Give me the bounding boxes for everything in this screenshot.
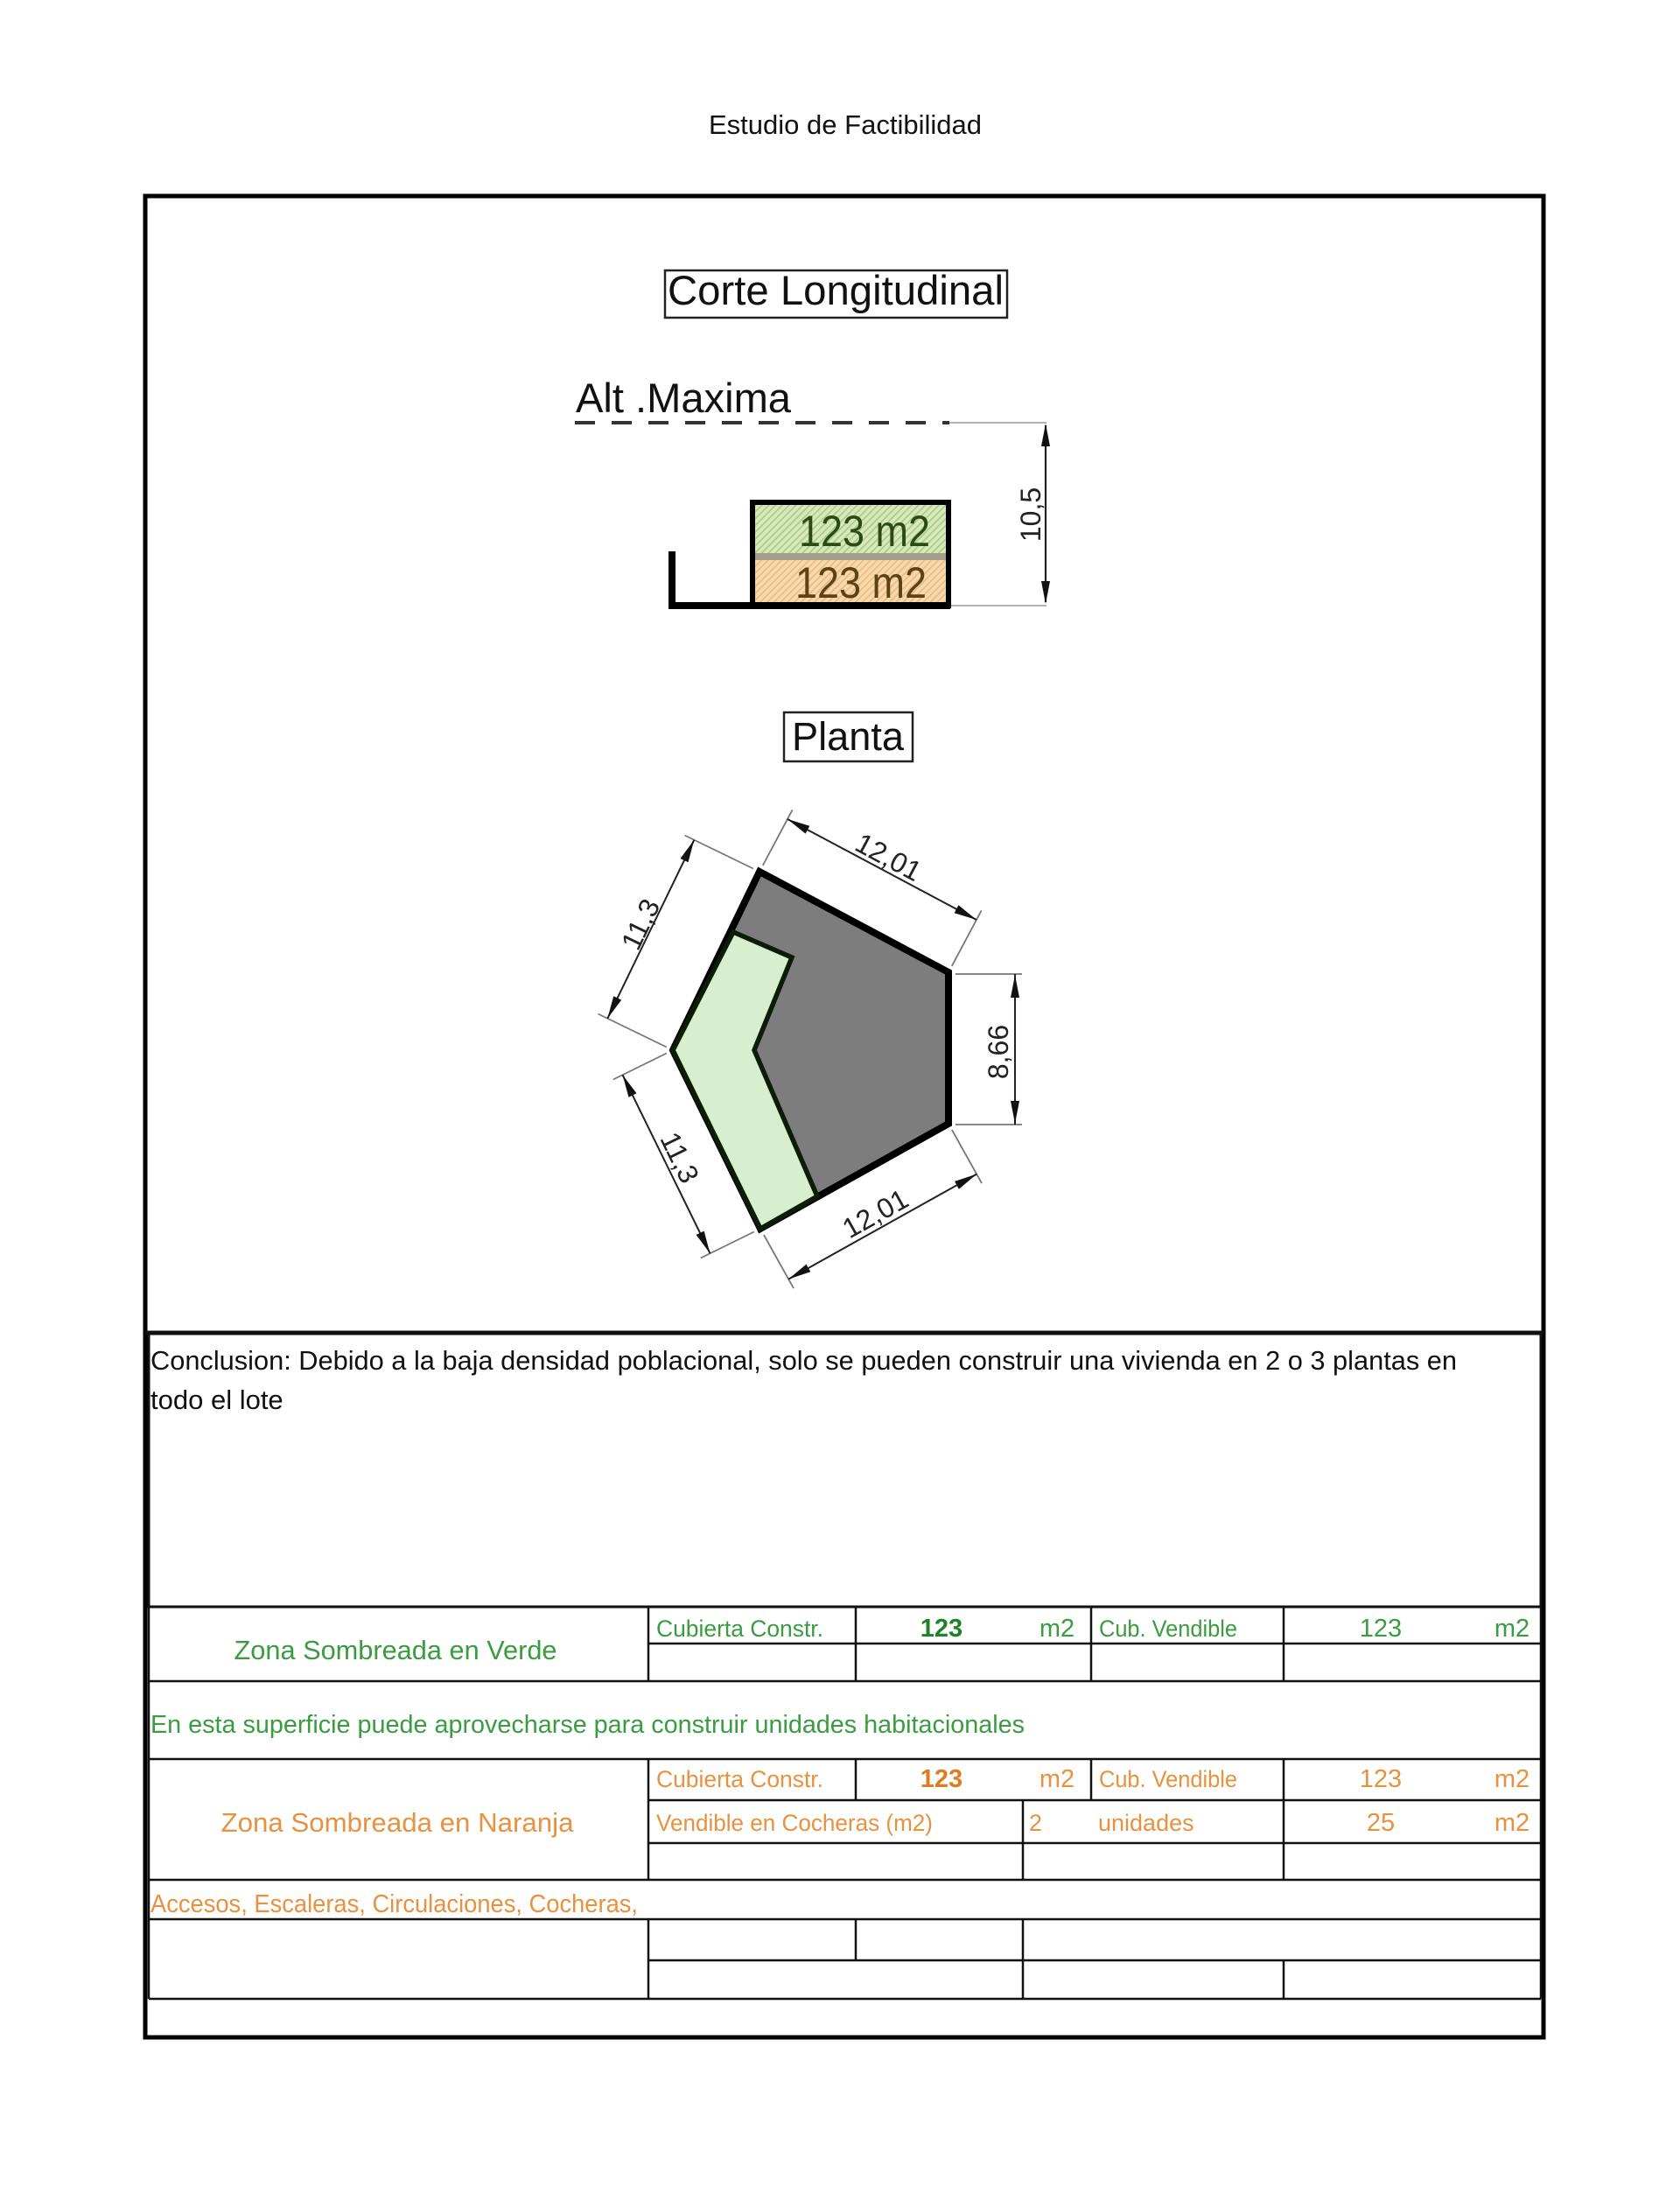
- svg-text:Estudio de Factibilidad: Estudio de Factibilidad: [709, 109, 982, 140]
- svg-text:123: 123: [1360, 1765, 1402, 1793]
- svg-text:Cub. Vendible: Cub. Vendible: [1099, 1616, 1237, 1642]
- svg-text:123 m2: 123 m2: [795, 558, 927, 607]
- svg-text:Cubierta Constr.: Cubierta Constr.: [656, 1766, 823, 1792]
- svg-text:m2: m2: [1494, 1765, 1529, 1793]
- svg-text:Planta: Planta: [792, 714, 905, 759]
- svg-text:123: 123: [920, 1765, 962, 1793]
- svg-text:Conclusion: Debido a la baja d: Conclusion: Debido a la baja densidad po…: [150, 1345, 1457, 1376]
- svg-text:Cubierta Constr.: Cubierta Constr.: [656, 1616, 823, 1642]
- svg-text:En esta superficie puede aprov: En esta superficie puede aprovecharse pa…: [150, 1711, 1025, 1739]
- svg-text:123: 123: [920, 1615, 962, 1643]
- svg-text:unidades: unidades: [1098, 1810, 1194, 1836]
- svg-text:m2: m2: [1039, 1615, 1074, 1643]
- svg-text:8,66: 8,66: [983, 1025, 1014, 1079]
- svg-text:todo el lote: todo el lote: [150, 1384, 283, 1415]
- svg-text:25: 25: [1367, 1809, 1395, 1837]
- svg-text:Zona Sombreada en Verde: Zona Sombreada en Verde: [234, 1635, 557, 1665]
- svg-text:Accesos, Escaleras, Circulacio: Accesos, Escaleras, Circulaciones, Coche…: [150, 1890, 638, 1918]
- svg-text:Zona Sombreada en Naranja: Zona Sombreada en Naranja: [221, 1807, 575, 1838]
- svg-text:m2: m2: [1039, 1765, 1074, 1793]
- svg-text:10,5: 10,5: [1015, 487, 1046, 542]
- svg-text:m2: m2: [1494, 1809, 1529, 1837]
- svg-text:Cub. Vendible: Cub. Vendible: [1099, 1766, 1237, 1792]
- svg-text:2: 2: [1029, 1810, 1042, 1836]
- svg-text:Alt .Maxima: Alt .Maxima: [576, 375, 792, 421]
- svg-text:Corte Longitudinal: Corte Longitudinal: [668, 267, 1004, 313]
- svg-text:123: 123: [1360, 1615, 1402, 1643]
- svg-text:123 m2: 123 m2: [799, 507, 930, 556]
- svg-text:Vendible en Cocheras (m2): Vendible en Cocheras (m2): [656, 1810, 933, 1836]
- svg-text:m2: m2: [1494, 1615, 1529, 1643]
